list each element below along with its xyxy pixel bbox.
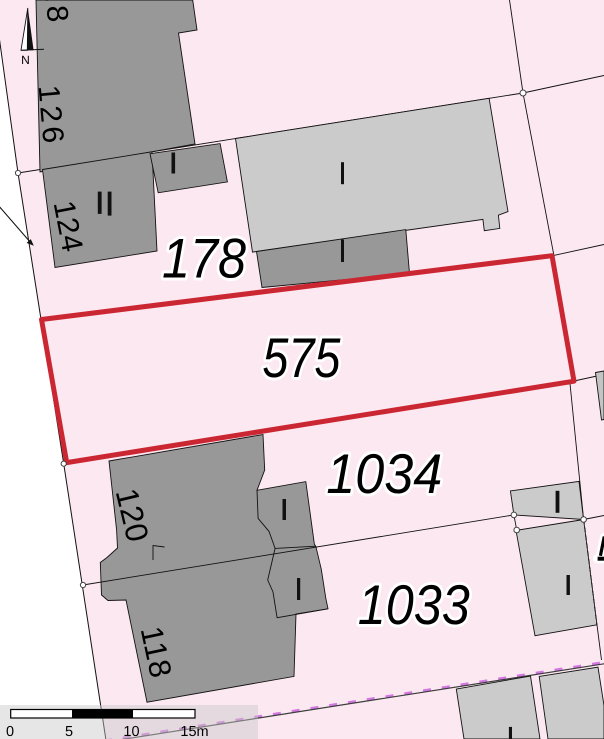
svg-text:126: 126	[32, 84, 70, 149]
svg-text:1034: 1034	[326, 442, 442, 505]
svg-text:128: 128	[36, 0, 74, 27]
svg-text:178: 178	[162, 227, 246, 290]
svg-text:10: 10	[123, 724, 139, 739]
svg-text:1033: 1033	[358, 573, 470, 636]
svg-text:5: 5	[65, 724, 73, 739]
svg-text:15m: 15m	[180, 724, 208, 739]
svg-text:575: 575	[262, 326, 341, 389]
svg-text:0: 0	[6, 724, 14, 739]
svg-text:N: N	[21, 53, 30, 67]
